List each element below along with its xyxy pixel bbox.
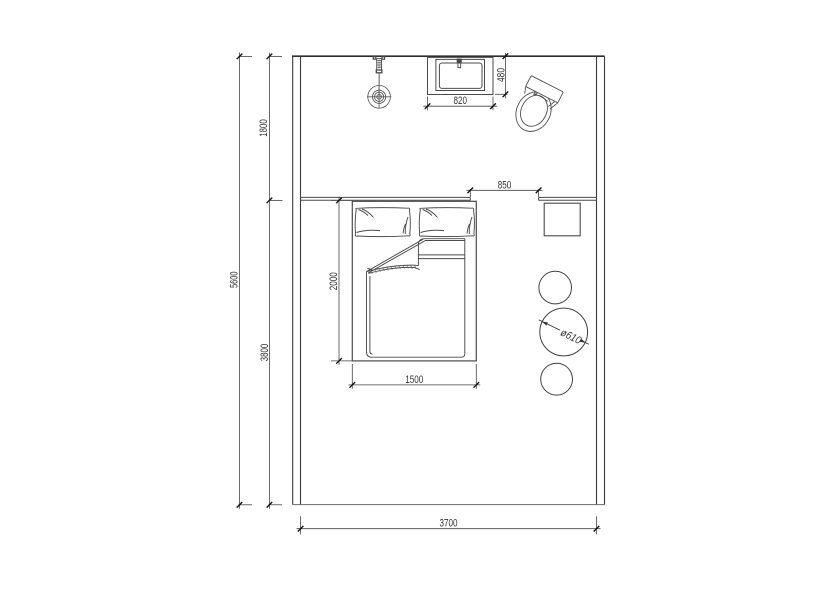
svg-text:3800: 3800 [259, 344, 271, 362]
svg-text:5600: 5600 [228, 272, 240, 289]
svg-text:820: 820 [454, 95, 468, 107]
svg-text:1500: 1500 [405, 374, 423, 386]
svg-text:1800: 1800 [258, 119, 270, 137]
svg-text:850: 850 [498, 179, 512, 191]
svg-text:3700: 3700 [440, 518, 458, 530]
svg-text:480: 480 [496, 68, 508, 82]
svg-text:2000: 2000 [328, 272, 340, 290]
